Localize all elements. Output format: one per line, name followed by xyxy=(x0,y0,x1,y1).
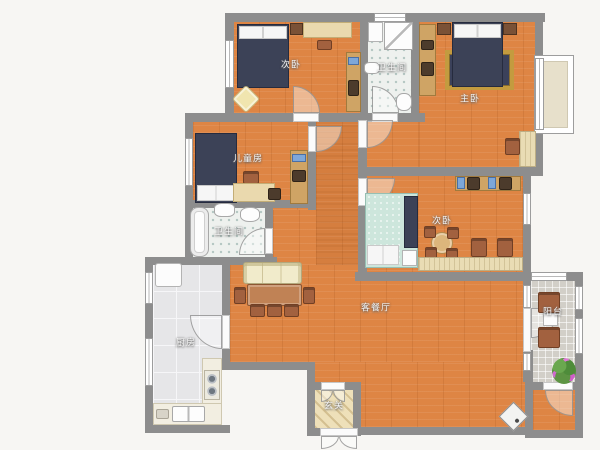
nightstand xyxy=(503,23,517,35)
chair xyxy=(471,238,487,257)
wall xyxy=(222,362,315,370)
door-threshold xyxy=(308,126,316,152)
room-label-secondary-bedroom-top: 次卧 xyxy=(281,58,301,71)
shoe-cabinet-knob xyxy=(514,418,520,424)
toilet xyxy=(396,93,412,111)
master-bed-pillows xyxy=(454,24,501,38)
bed-pillows xyxy=(239,26,287,39)
wardrobe-item xyxy=(421,62,434,76)
sofa xyxy=(243,262,302,284)
wardrobe-item xyxy=(292,154,306,162)
wall xyxy=(523,176,531,281)
dining-chair xyxy=(303,287,315,304)
fridge xyxy=(155,263,182,287)
bed-pillows xyxy=(367,245,399,265)
desk-chair xyxy=(467,177,480,190)
door-threshold xyxy=(358,120,367,148)
dining-chair xyxy=(267,304,282,317)
potted-plant xyxy=(552,358,576,384)
room-label-entrance: 玄关 xyxy=(324,399,344,412)
dining-chair xyxy=(250,304,265,317)
room-label-master-bedroom: 主卧 xyxy=(460,92,480,105)
window xyxy=(523,193,531,225)
dresser-item xyxy=(348,57,359,65)
window xyxy=(531,272,567,281)
table-chair xyxy=(447,227,459,239)
shower xyxy=(384,22,413,50)
counter-item xyxy=(156,409,169,419)
desk-item xyxy=(268,188,281,200)
main-entry-door-arc-right xyxy=(339,436,357,449)
desk xyxy=(303,22,352,38)
chair xyxy=(497,238,513,257)
window xyxy=(185,138,193,186)
room-label-secondary-bedroom-right: 次卧 xyxy=(432,214,452,227)
hallway-floor-lower xyxy=(273,210,316,265)
bed-footboard xyxy=(402,250,417,266)
door-threshold xyxy=(321,382,345,390)
nightstand xyxy=(290,23,303,35)
wall xyxy=(358,167,543,176)
stove xyxy=(204,370,220,400)
bay-window-interior xyxy=(541,61,568,128)
wall xyxy=(355,427,533,435)
dining-chair xyxy=(234,287,246,304)
window xyxy=(523,285,531,308)
room-label-living-dining: 客餐厅 xyxy=(361,301,391,314)
dining-table xyxy=(247,284,302,306)
kitchen-sink xyxy=(172,406,205,422)
washbasin xyxy=(214,203,235,217)
wall xyxy=(145,425,230,433)
window xyxy=(523,353,531,371)
room-label-children-room: 儿童房 xyxy=(233,152,263,165)
bed-side-band xyxy=(404,196,418,248)
wall xyxy=(345,382,361,390)
computer xyxy=(488,177,496,189)
window xyxy=(225,40,234,88)
door-threshold xyxy=(543,382,573,390)
wardrobe-item xyxy=(292,170,306,182)
low-cabinet xyxy=(418,257,523,271)
wall xyxy=(535,13,543,61)
main-entry-door-arc-left xyxy=(321,436,339,449)
balcony-chair xyxy=(538,327,560,348)
nightstand xyxy=(437,23,451,35)
window xyxy=(145,338,153,386)
room-label-bathroom-top: 卫生间 xyxy=(377,61,407,74)
bathroom-cabinet xyxy=(368,22,383,42)
wall xyxy=(525,430,583,438)
wall xyxy=(307,362,315,436)
desk xyxy=(519,131,536,167)
bay-window-sill xyxy=(535,58,544,130)
room-label-balcony: 阳台 xyxy=(543,305,563,318)
computer xyxy=(457,177,465,189)
dining-chair xyxy=(284,304,299,317)
wardrobe xyxy=(419,24,436,96)
door-threshold xyxy=(523,308,531,352)
toilet xyxy=(240,207,260,222)
stool xyxy=(317,40,332,50)
dresser-item-dark xyxy=(348,80,359,96)
floor-plan-canvas: 次卧 卫生间 主卧 儿童房 卫生间 次卧 客餐厅 厨房 玄关 阳台 xyxy=(0,0,600,450)
door-threshold xyxy=(293,113,319,122)
bed-pillows xyxy=(197,185,235,201)
door-threshold xyxy=(265,228,273,254)
window xyxy=(575,286,583,310)
window xyxy=(575,318,583,354)
table-chair xyxy=(424,226,436,238)
room-label-bathroom-lower: 卫生间 xyxy=(214,225,244,238)
main-entry-door xyxy=(320,428,358,436)
wardrobe-item xyxy=(421,40,434,50)
window xyxy=(374,13,406,22)
bathtub xyxy=(190,207,209,257)
desk-chair xyxy=(499,177,512,190)
window xyxy=(145,272,153,304)
wall xyxy=(222,258,230,370)
door-threshold xyxy=(222,315,230,349)
desk-chair xyxy=(505,138,520,155)
room-label-kitchen: 厨房 xyxy=(176,336,196,349)
